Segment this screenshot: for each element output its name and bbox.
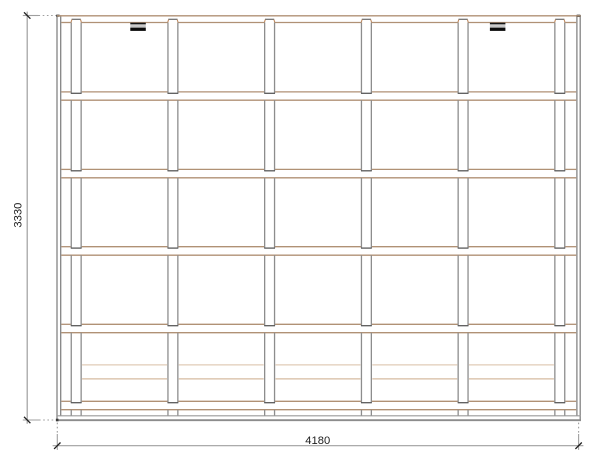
svg-text:4180: 4180 — [305, 435, 330, 447]
svg-text:3330: 3330 — [13, 203, 25, 228]
